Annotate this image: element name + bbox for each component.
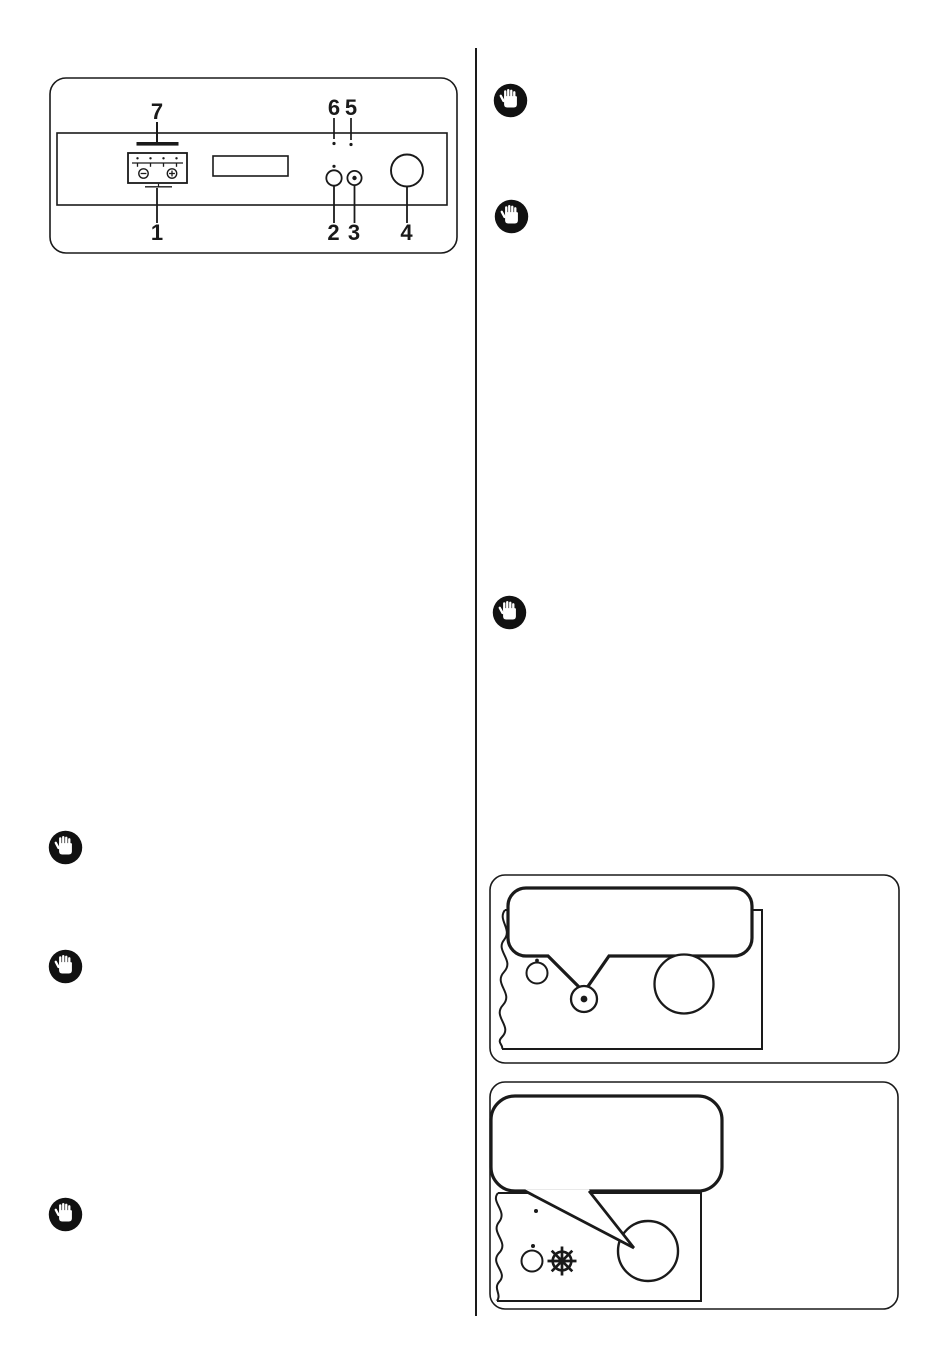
important-hand-icon <box>492 595 527 630</box>
callout-label-5: 5 <box>345 95 357 120</box>
program-knob <box>655 955 714 1014</box>
plus-circle-icon <box>167 169 176 178</box>
callout-label-4: 4 <box>400 220 413 245</box>
callout-box-program-knob <box>489 1081 899 1310</box>
minus-circle-icon <box>139 169 148 178</box>
important-hand-icon <box>48 830 83 865</box>
callout-label-7: 7 <box>151 99 163 124</box>
led-dot-left <box>332 142 335 145</box>
option-button-2 <box>326 170 341 185</box>
control-panel-figure: 7 <box>49 77 458 254</box>
program-knob <box>618 1221 678 1281</box>
important-hand-icon <box>48 949 83 984</box>
led-dot-right <box>349 143 352 146</box>
important-hand-icon <box>494 199 529 234</box>
start-button-dot <box>352 176 356 180</box>
callout-label-2: 2 <box>327 220 339 245</box>
callout-box-start-button <box>489 874 900 1064</box>
display-window <box>213 156 288 176</box>
important-hand-icon <box>48 1197 83 1232</box>
panel-face <box>57 133 447 205</box>
figure-frame <box>50 78 457 253</box>
callout-label-1: 1 <box>151 220 163 245</box>
important-hand-icon <box>493 83 528 118</box>
top-bar <box>137 142 179 146</box>
button-2-mark <box>332 165 335 168</box>
indicator-dot <box>534 1209 538 1213</box>
torn-edge <box>496 1193 503 1301</box>
button-mark-dot <box>531 1244 535 1248</box>
speech-balloon <box>491 1096 722 1191</box>
manual-page: 7 <box>0 0 950 1364</box>
program-selector <box>128 153 187 187</box>
callout-label-3: 3 <box>348 220 360 245</box>
option-button <box>522 1251 543 1272</box>
torn-edge <box>500 910 508 1049</box>
callout-label-6: 6 <box>328 95 340 120</box>
program-knob-4 <box>391 155 423 187</box>
start-button-dot <box>581 996 588 1003</box>
column-divider <box>475 48 477 1316</box>
option-button <box>527 963 548 984</box>
cold-wash-wheel-icon <box>548 1247 577 1276</box>
